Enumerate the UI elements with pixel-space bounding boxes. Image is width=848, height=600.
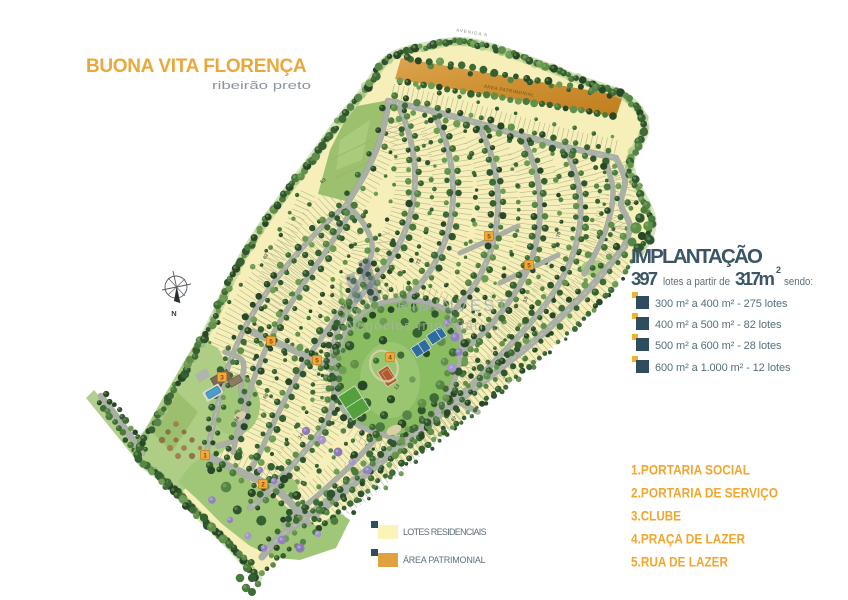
- svg-text:4: 4: [388, 354, 392, 361]
- svg-text:397: 397: [631, 268, 658, 289]
- svg-text:BUONA VITA FLORENÇA: BUONA VITA FLORENÇA: [86, 56, 307, 77]
- svg-text:2: 2: [261, 481, 265, 488]
- svg-text:5: 5: [487, 233, 491, 240]
- svg-text:300 m² a 400 m² - 275 lotes: 300 m² a 400 m² - 275 lotes: [655, 298, 788, 310]
- svg-text:2.PORTARIA DE SERVIÇO: 2.PORTARIA DE SERVIÇO: [631, 485, 778, 501]
- svg-text:317m: 317m: [735, 268, 775, 289]
- svg-text:lotes a partir de: lotes a partir de: [663, 276, 730, 288]
- svg-text:1: 1: [203, 452, 207, 459]
- svg-text:5: 5: [315, 357, 319, 364]
- svg-text:IMPLANTAÇÃO: IMPLANTAÇÃO: [631, 245, 763, 268]
- svg-text:5: 5: [269, 338, 273, 345]
- svg-text:ÁREA PATRIMONIAL: ÁREA PATRIMONIAL: [403, 555, 486, 565]
- svg-text:N: N: [171, 309, 176, 318]
- svg-text:ribeirão preto: ribeirão preto: [212, 80, 311, 92]
- svg-text:4.PRAÇA DE LAZER: 4.PRAÇA DE LAZER: [631, 531, 745, 547]
- svg-text:3.CLUBE: 3.CLUBE: [631, 508, 681, 524]
- svg-text:600 m² a 1.000 m² - 12 lotes: 600 m² a 1.000 m² - 12 lotes: [655, 362, 791, 374]
- svg-text:3: 3: [220, 374, 224, 381]
- svg-text:1.PORTARIA SOCIAL: 1.PORTARIA SOCIAL: [631, 462, 750, 478]
- svg-text:sendo:: sendo:: [784, 276, 813, 288]
- svg-text:2: 2: [776, 265, 781, 275]
- svg-text:5.RUA DE LAZER: 5.RUA DE LAZER: [631, 554, 728, 570]
- svg-text:Negócios Imobiliários: Negócios Imobiliários: [346, 318, 501, 333]
- svg-text:5: 5: [527, 262, 531, 269]
- svg-text:400 m² a 500 m² - 82 lotes: 400 m² a 500 m² - 82 lotes: [655, 319, 782, 331]
- svg-text:RIMINVEST: RIMINVEST: [397, 296, 509, 315]
- svg-text:500 m² a 600 m² - 28 lotes: 500 m² a 600 m² - 28 lotes: [655, 340, 782, 352]
- svg-text:LOTES RESIDENCIAIS: LOTES RESIDENCIAIS: [403, 527, 487, 537]
